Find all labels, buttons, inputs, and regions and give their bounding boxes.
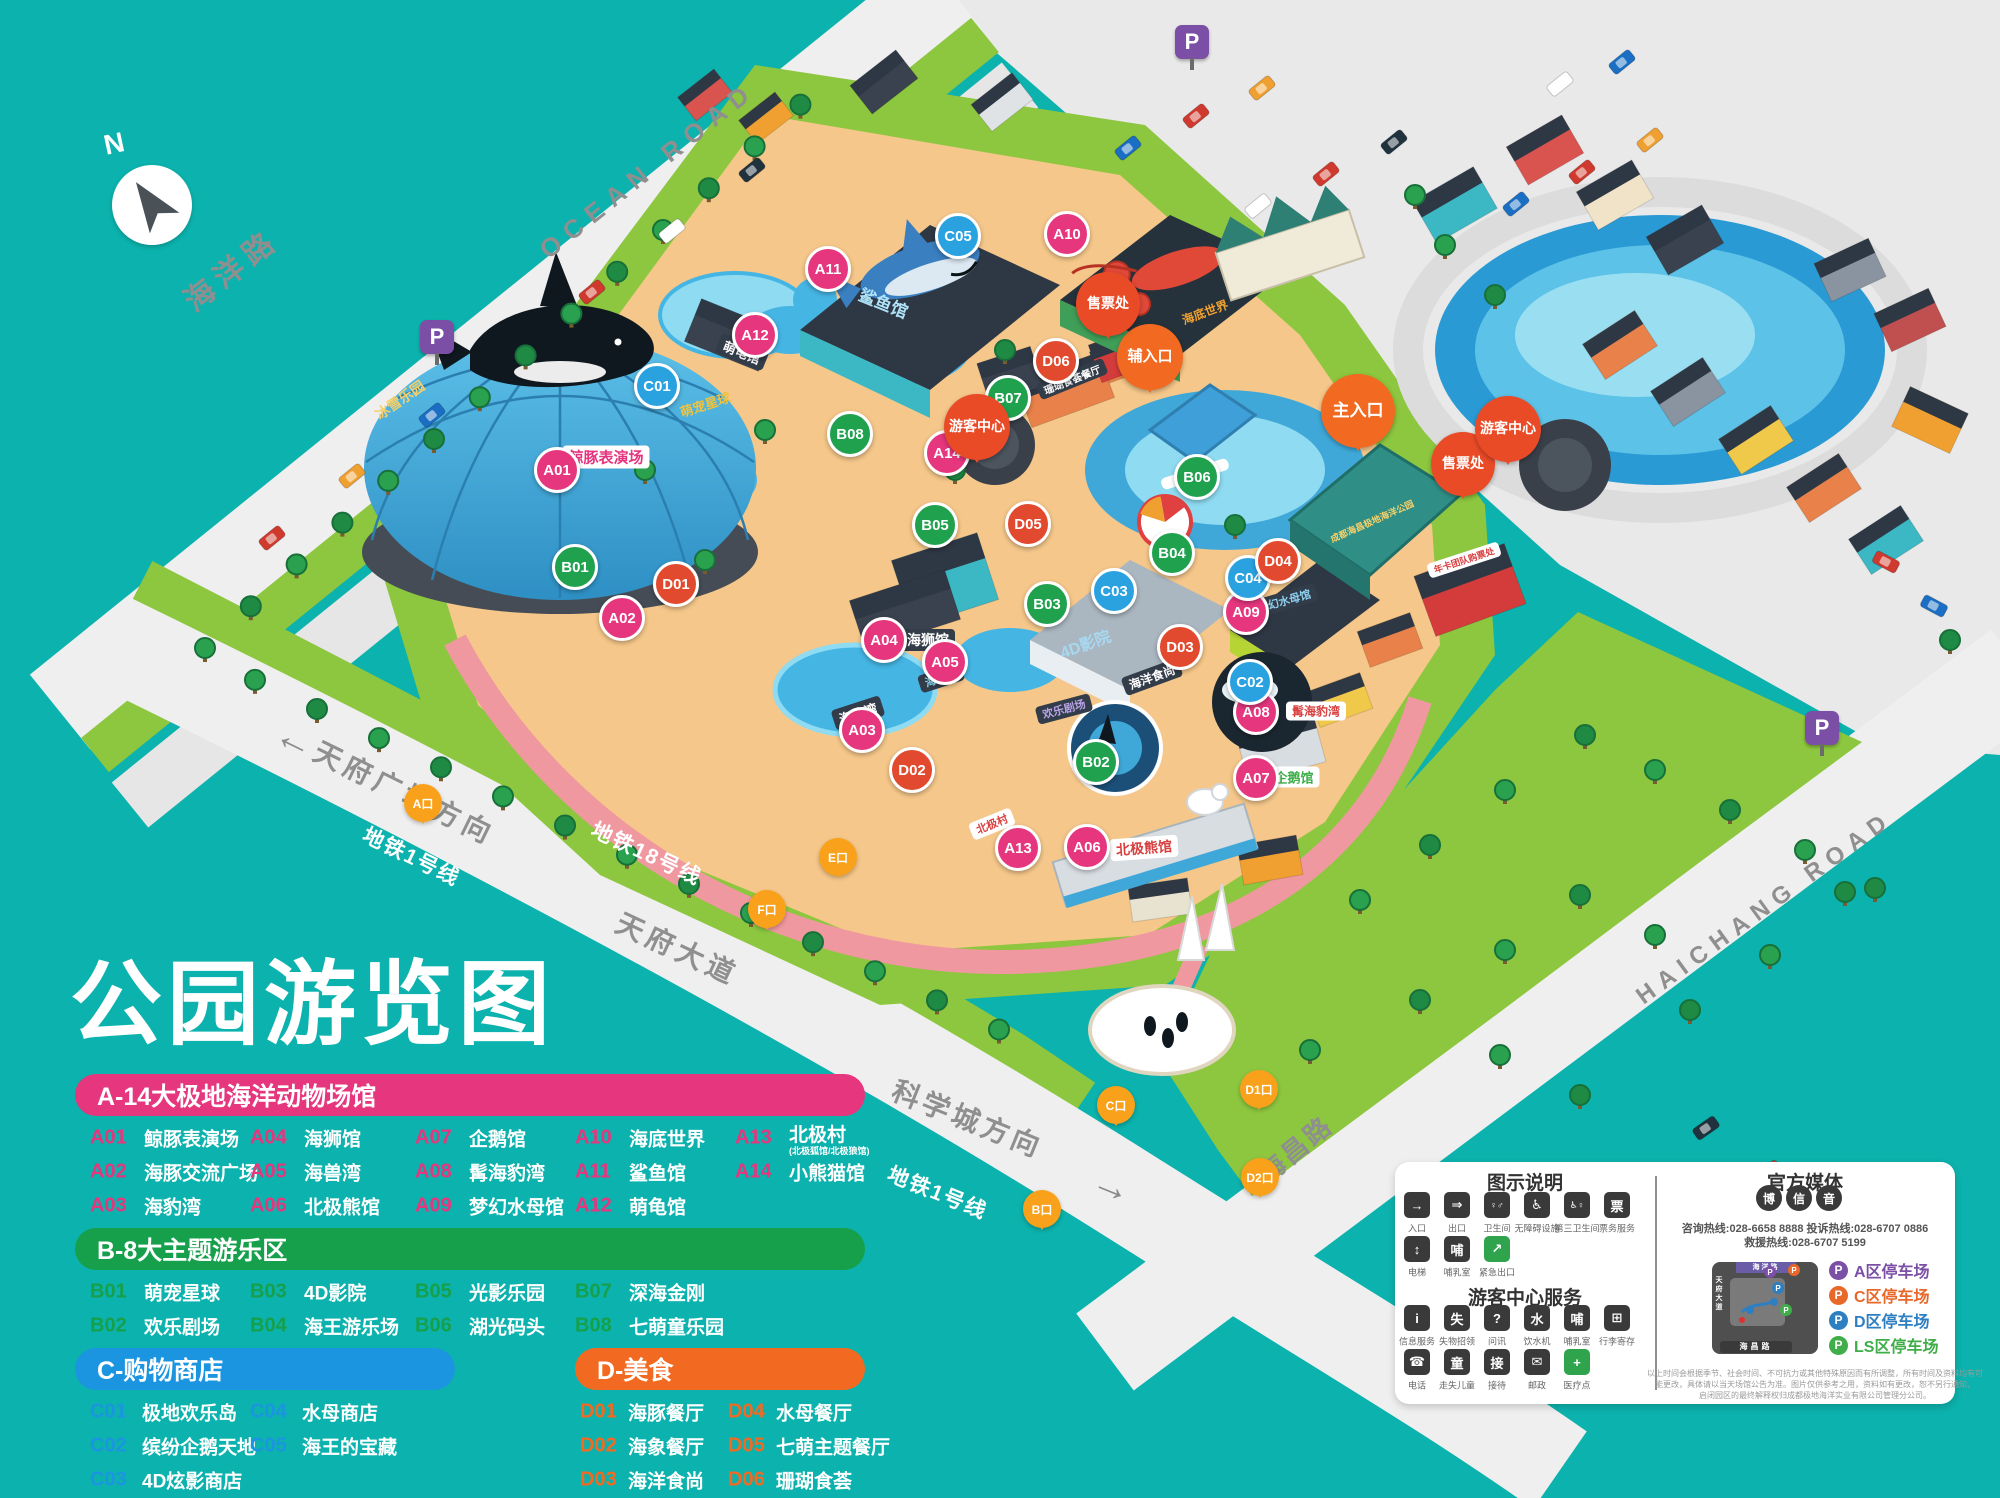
legend-item-name-B08: 七萌童乐园 [629, 1313, 724, 1340]
map-marker-d05: D05 [1005, 501, 1051, 547]
map-sign-15: 北极熊馆 [1109, 835, 1178, 862]
legend-header-B: B-8大主题游乐区 [75, 1228, 865, 1270]
legend-item-name-B07: 深海金刚 [629, 1279, 705, 1306]
service-label-1: 失物招领 [1439, 1335, 1475, 1348]
emergency-exit-icon: ↗ [1484, 1236, 1510, 1262]
balloon-辅入口-1: 辅入口 [1117, 324, 1183, 390]
park-map-poster: 公园游览图 N 海洋路 OCEAN ROAD ← 天府广场方向 地铁1号线 地铁… [0, 0, 2000, 1498]
parking-label: A区停车场 [1854, 1258, 1930, 1282]
legend-header-D: D-美食 [575, 1348, 865, 1390]
legend-item-code-A08: A08 [415, 1161, 452, 1184]
service-label-4: 哺乳室 [1563, 1335, 1590, 1348]
legend-item-code-C01: C01 [90, 1401, 127, 1424]
parking-label: C区停车场 [1854, 1283, 1930, 1307]
svg-text:P: P [1783, 1306, 1789, 1315]
service-label-2: 问讯 [1488, 1335, 1506, 1348]
elevator-icon: ↕ [1404, 1236, 1430, 1262]
legend-header-C: C-购物商店 [75, 1348, 455, 1390]
map-marker-a07: A07 [1233, 755, 1279, 801]
legend-item-name-D04: 水母餐厅 [776, 1399, 852, 1426]
panel-divider [1655, 1176, 1657, 1390]
icon-legend-title: 图示说明 [1487, 1168, 1563, 1195]
information-icon: i [1404, 1305, 1430, 1331]
restroom-icon: ♀♂ [1484, 1192, 1510, 1218]
disclaimer-line-0: 以上时间会根据季节、社会时间、不可抗力或其他特殊原因而有所调整，所有时间及资料均… [1647, 1368, 1983, 1379]
service-label-5: 行李寄存 [1599, 1335, 1635, 1348]
ticket-service-icon: 票 [1604, 1192, 1630, 1218]
balloon-游客中心-4: 游客中心 [1475, 396, 1541, 462]
parking-label: D区停车场 [1854, 1308, 1930, 1332]
compass [112, 165, 192, 245]
service-label-7: 走失儿童 [1439, 1379, 1475, 1392]
metro-exit-B口: B口 [1023, 1190, 1061, 1228]
legend-item-code-B05: B05 [415, 1281, 452, 1304]
map-marker-d01: D01 [653, 561, 699, 607]
legend-item-name-C01: 极地欢乐岛 [142, 1399, 237, 1426]
map-marker-b04: B04 [1149, 530, 1195, 576]
legend-item-code-B08: B08 [575, 1315, 612, 1338]
post-icon: ✉ [1524, 1349, 1550, 1375]
legend-item-name-A14: 小熊猫馆 [789, 1159, 865, 1186]
legend-item-name-B01: 萌宠星球 [144, 1279, 220, 1306]
map-marker-a13: A13 [995, 825, 1041, 871]
map-marker-b08: B08 [827, 411, 873, 457]
map-marker-d02: D02 [889, 747, 935, 793]
legend-item-code-A03: A03 [90, 1195, 127, 1218]
legend-item-name-D01: 海豚餐厅 [628, 1399, 704, 1426]
parking-row-A区停车场: PA区停车场 [1829, 1258, 1930, 1282]
map-marker-b02: B02 [1073, 739, 1119, 785]
legend-item-code-A14: A14 [735, 1161, 772, 1184]
parking-row-C区停车场: PC区停车场 [1829, 1283, 1930, 1307]
map-marker-b03: B03 [1024, 581, 1070, 627]
map-marker-c05: C05 [935, 213, 981, 259]
entrance-icon: → [1404, 1192, 1430, 1218]
legend-item-name-B04: 海王游乐场 [304, 1313, 399, 1340]
icon-legend-label-3: 无障碍设施 [1514, 1222, 1559, 1235]
legend-item-code-A10: A10 [575, 1127, 612, 1150]
wechat-icon: 信 [1786, 1185, 1812, 1211]
info-panel: 图示说明 →入口⇒出口♀♂卫生间♿无障碍设施♿♀第三卫生间票票务服务↕电梯哺哺乳… [1395, 1162, 1955, 1404]
map-sign-14: 髯海豹湾 [1286, 702, 1346, 721]
parking-sign-1: P [420, 320, 454, 354]
map-marker-d03: D03 [1157, 624, 1203, 670]
legend-item-name-A03: 海豹湾 [144, 1193, 201, 1220]
parking-p-icon: P [1829, 1336, 1848, 1355]
legend-item-code-D04: D04 [728, 1401, 765, 1424]
accessible-icon: ♿ [1524, 1192, 1550, 1218]
map-marker-d04: D04 [1255, 538, 1301, 584]
map-marker-c02: C02 [1227, 659, 1273, 705]
legend-item-name-C04: 水母商店 [302, 1399, 378, 1426]
luggage-storage-icon: ⊞ [1604, 1305, 1630, 1331]
svg-text:P: P [1775, 1284, 1781, 1293]
legend-item-code-B06: B06 [415, 1315, 452, 1338]
map-marker-a01: A01 [534, 447, 580, 493]
legend-item-name-C05: 海王的宝藏 [302, 1433, 397, 1460]
legend-item-name-C03: 4D炫影商店 [142, 1467, 242, 1494]
legend-item-name-C02: 缤纷企鹅天地 [142, 1433, 256, 1460]
telephone-icon: ☎ [1404, 1349, 1430, 1375]
map-marker-a04: A04 [861, 617, 907, 663]
legend-item-name-A11: 鲨鱼馆 [629, 1159, 686, 1186]
map-marker-d06: D06 [1033, 338, 1079, 384]
metro-exit-D1口: D1口 [1240, 1070, 1278, 1108]
water-dispenser-icon: 水 [1524, 1305, 1550, 1331]
service-label-10: 医疗点 [1563, 1379, 1590, 1392]
icon-legend-label-2: 卫生间 [1483, 1222, 1510, 1235]
map-marker-a05: A05 [922, 639, 968, 685]
parking-p-icon: P [1829, 1261, 1848, 1280]
legend-item-name-D02: 海象餐厅 [628, 1433, 704, 1460]
icon-legend-label-8: 紧急出口 [1479, 1266, 1515, 1279]
map-marker-b01: B01 [552, 544, 598, 590]
parking-label: LS区停车场 [1854, 1333, 1938, 1357]
legend-item-code-A05: A05 [250, 1161, 287, 1184]
parking-row-LS区停车场: PLS区停车场 [1829, 1333, 1938, 1357]
legend-item-name-D05: 七萌主题餐厅 [776, 1433, 890, 1460]
map-marker-a03: A03 [839, 707, 885, 753]
third-restroom-icon: ♿♀ [1564, 1192, 1590, 1218]
legend-item-name-A10: 海底世界 [629, 1125, 705, 1152]
map-marker-c01: C01 [634, 363, 680, 409]
douyin-icon: 音 [1816, 1185, 1842, 1211]
nursing-room-icon: 哺 [1564, 1305, 1590, 1331]
legend-item-name-A13: 北极村(北极狐馆/北极狼馆) [789, 1120, 870, 1156]
metro-exit-C口: C口 [1097, 1086, 1135, 1124]
service-label-9: 邮政 [1528, 1379, 1546, 1392]
legend-item-code-D02: D02 [580, 1435, 617, 1458]
legend-item-code-A09: A09 [415, 1195, 452, 1218]
legend-item-code-A06: A06 [250, 1195, 287, 1218]
legend-item-code-A11: A11 [575, 1161, 611, 1184]
legend-item-name-D03: 海洋食尚 [628, 1467, 704, 1494]
legend-item-code-A02: A02 [90, 1161, 127, 1184]
legend-item-name-A01: 鲸豚表演场 [144, 1125, 239, 1152]
lost-child-icon: 童 [1444, 1349, 1470, 1375]
legend-item-code-D05: D05 [728, 1435, 765, 1458]
service-label-6: 电话 [1408, 1379, 1426, 1392]
parking-row-D区停车场: PD区停车场 [1829, 1308, 1930, 1332]
map-marker-a12: A12 [732, 312, 778, 358]
metro-exit-D2口: D2口 [1241, 1158, 1279, 1196]
svg-text:P: P [1791, 1266, 1797, 1275]
legend-item-code-B04: B04 [250, 1315, 287, 1338]
icon-legend-label-5: 票务服务 [1599, 1222, 1635, 1235]
legend-item-name-A12: 萌龟馆 [629, 1193, 686, 1220]
icon-legend-label-1: 出口 [1448, 1222, 1466, 1235]
legend-item-name-A02: 海豚交流广场 [144, 1159, 258, 1186]
inquiry-icon: ? [1484, 1305, 1510, 1331]
balloon-售票处-3: 售票处 [1076, 272, 1140, 336]
parking-p-icon: P [1829, 1311, 1848, 1330]
nursing-room-icon: 哺 [1444, 1236, 1470, 1262]
legend-item-code-B03: B03 [250, 1281, 287, 1304]
legend-header-A: A-14大极地海洋动物场馆 [75, 1074, 865, 1116]
balloon-游客中心-5: 游客中心 [944, 394, 1010, 460]
legend-item-code-A12: A12 [575, 1195, 612, 1218]
legend-item-code-C02: C02 [90, 1435, 127, 1458]
parking-sign-2: P [1805, 711, 1839, 745]
minimap-road-bottom: 海昌路 [1720, 1341, 1792, 1353]
legend-item-code-B01: B01 [90, 1281, 127, 1304]
legend-item-name-A07: 企鹅馆 [469, 1125, 526, 1152]
map-marker-a11: A11 [805, 246, 851, 292]
legend-item-name-A08: 髯海豹湾 [469, 1159, 545, 1186]
legend-item-code-B02: B02 [90, 1315, 127, 1338]
map-marker-c03: C03 [1091, 568, 1137, 614]
legend-item-code-D01: D01 [580, 1401, 617, 1424]
parking-sign-0: P [1175, 25, 1209, 59]
map-marker-a10: A10 [1044, 211, 1090, 257]
legend-item-name-A04: 海狮馆 [304, 1125, 361, 1152]
legend-item-code-D06: D06 [728, 1469, 765, 1492]
service-label-0: 信息服务 [1399, 1335, 1435, 1348]
disclaimer-line-2: 启闭园区的最终解释权归成都极地海洋实业有限公司管理分公司。 [1699, 1390, 1931, 1401]
metro-exit-E口: E口 [819, 838, 857, 876]
service-label-3: 饮水机 [1523, 1335, 1550, 1348]
medical-icon: + [1564, 1349, 1590, 1375]
legend-item-code-A07: A07 [415, 1127, 452, 1150]
legend-item-name-A05: 海兽湾 [304, 1159, 361, 1186]
weibo-icon: 博 [1756, 1185, 1782, 1211]
icon-legend-label-0: 入口 [1408, 1222, 1426, 1235]
map-marker-b05: B05 [912, 502, 958, 548]
page-title: 公园游览图 [70, 930, 555, 1063]
legend-item-name-D06: 珊瑚食荟 [776, 1467, 852, 1494]
hotline-rescue: 救援热线:028-6707 5199 [1744, 1234, 1866, 1250]
exit-icon: ⇒ [1444, 1192, 1470, 1218]
balloon-主入口-0: 主入口 [1321, 374, 1395, 448]
legend-item-code-A01: A01 [90, 1127, 127, 1150]
lost-found-icon: 失 [1444, 1305, 1470, 1331]
icon-legend-label-4: 第三卫生间 [1554, 1222, 1599, 1235]
legend-item-code-B07: B07 [575, 1281, 612, 1304]
legend-item-code-D03: D03 [580, 1469, 617, 1492]
parking-p-icon: P [1829, 1286, 1848, 1305]
metro-exit-A口: A口 [404, 784, 442, 822]
svg-text:P: P [1767, 1268, 1773, 1277]
legend-item-name-B02: 欢乐剧场 [144, 1313, 220, 1340]
map-marker-a06: A06 [1064, 824, 1110, 870]
parking-minimap: 海洋路 天府大道 P P P P 海昌路 [1712, 1262, 1818, 1354]
legend-item-code-C04: C04 [250, 1401, 287, 1424]
legend-item-code-A04: A04 [250, 1127, 287, 1150]
legend-item-name-B03: 4D影院 [304, 1279, 366, 1306]
legend-item-name-B06: 湖光码头 [469, 1313, 545, 1340]
legend-item-name-A09: 梦幻水母馆 [469, 1193, 564, 1220]
icon-legend-label-7: 哺乳室 [1443, 1266, 1470, 1279]
legend-item-name-A06: 北极熊馆 [304, 1193, 380, 1220]
legend-item-code-A13: A13 [735, 1127, 772, 1150]
legend-item-name-B05: 光影乐园 [469, 1279, 545, 1306]
legend-item-note-A13: (北极狐馆/北极狼馆) [789, 1147, 870, 1156]
map-marker-a02: A02 [599, 595, 645, 641]
reception-icon: 接 [1484, 1349, 1510, 1375]
service-label-8: 接待 [1488, 1379, 1506, 1392]
icon-legend-label-6: 电梯 [1408, 1266, 1426, 1279]
legend-item-code-C05: C05 [250, 1435, 287, 1458]
map-marker-b06: B06 [1174, 454, 1220, 500]
legend-item-code-C03: C03 [90, 1469, 127, 1492]
disclaimer-line-1: 能更改，具体请以当天场馆公告为准。图片仅供参考之用，资料如有更改，恕不另行通知， [1655, 1379, 1975, 1390]
metro-exit-F口: F口 [748, 890, 786, 928]
